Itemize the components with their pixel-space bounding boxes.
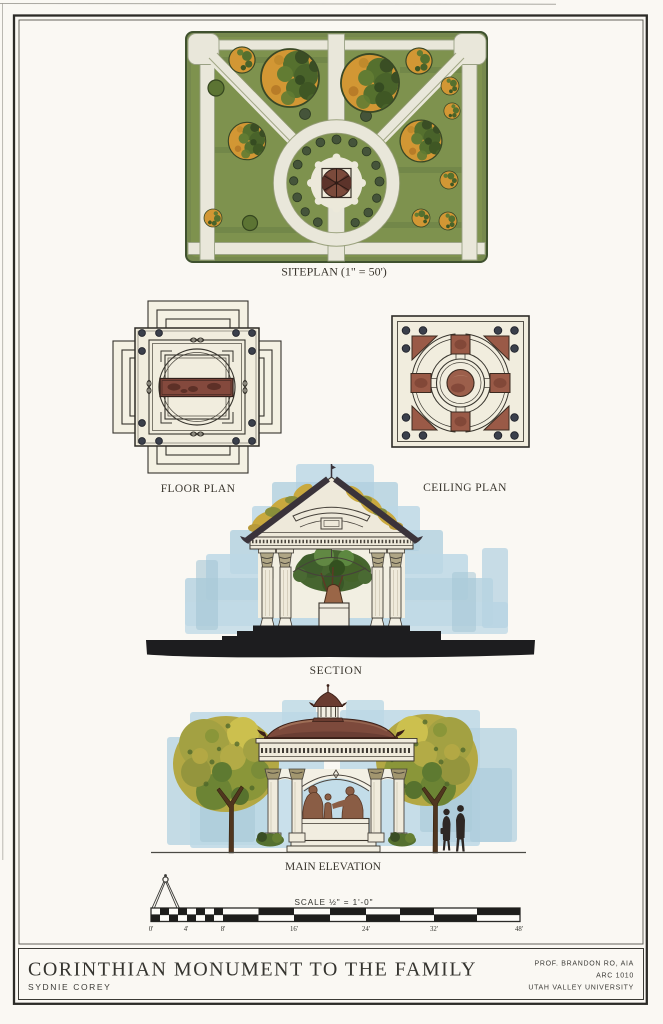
svg-text:MAIN ELEVATION: MAIN ELEVATION <box>285 861 382 873</box>
svg-text:SYDNIE COREY: SYDNIE COREY <box>28 982 111 992</box>
svg-text:24': 24' <box>362 926 370 933</box>
svg-text:32': 32' <box>430 926 438 933</box>
svg-text:SITEPLAN (1" = 50'): SITEPLAN (1" = 50') <box>281 265 387 279</box>
svg-text:FLOOR PLAN: FLOOR PLAN <box>161 483 236 495</box>
svg-text:SCALE ½" = 1'-0": SCALE ½" = 1'-0" <box>295 898 374 907</box>
svg-text:PROF. BRANDON RO, AIA: PROF. BRANDON RO, AIA <box>535 961 635 968</box>
svg-text:CEILING PLAN: CEILING PLAN <box>423 482 507 494</box>
svg-text:ARC 1010: ARC 1010 <box>596 973 634 980</box>
svg-text:CORINTHIAN MONUMENT TO THE FAM: CORINTHIAN MONUMENT TO THE FAMILY <box>28 959 477 981</box>
svg-text:8': 8' <box>221 926 226 933</box>
svg-text:0': 0' <box>149 926 154 933</box>
svg-text:UTAH VALLEY UNIVERSITY: UTAH VALLEY UNIVERSITY <box>528 985 634 992</box>
svg-text:SECTION: SECTION <box>310 665 363 677</box>
svg-text:48': 48' <box>515 926 523 933</box>
svg-text:4': 4' <box>184 926 189 933</box>
svg-text:16': 16' <box>290 926 298 933</box>
